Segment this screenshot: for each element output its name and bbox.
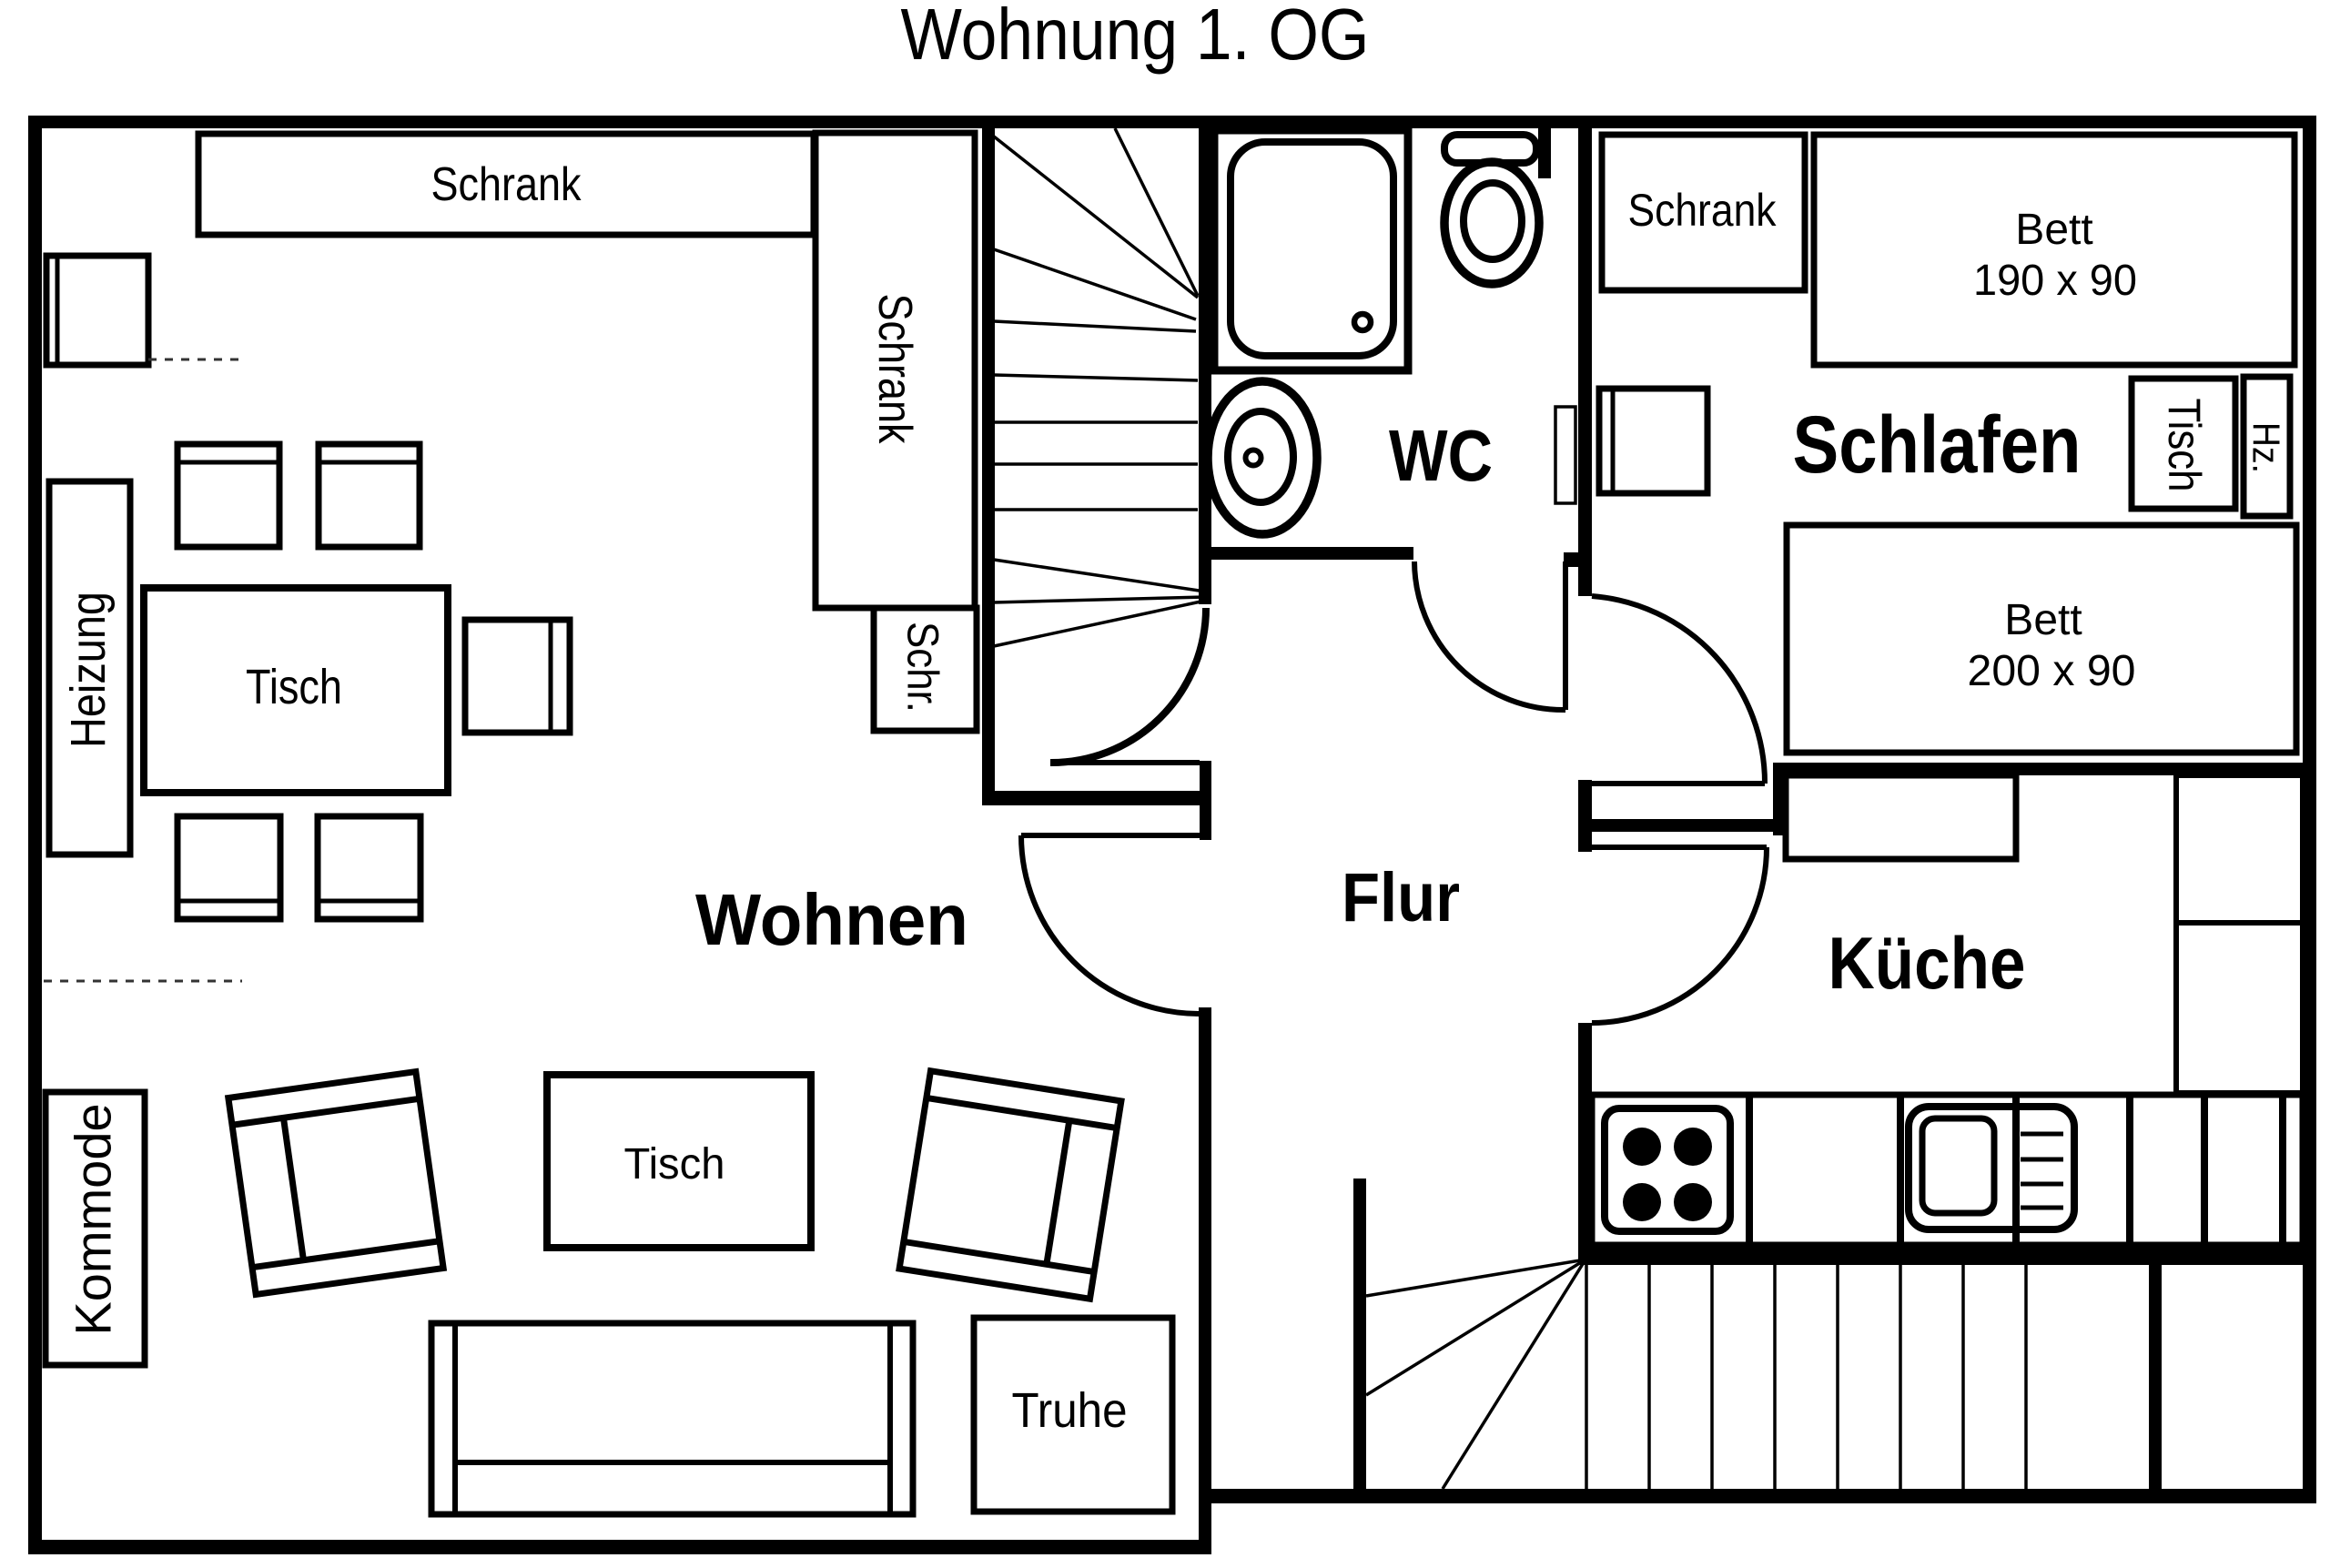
svg-text:Tisch: Tisch xyxy=(246,660,342,714)
svg-text:Bett: Bett xyxy=(2015,206,2092,254)
svg-text:Schrank: Schrank xyxy=(1628,185,1778,236)
svg-text:Tisch: Tisch xyxy=(2159,399,2210,492)
svg-text:Heizung: Heizung xyxy=(61,592,116,748)
svg-text:190 x 90: 190 x 90 xyxy=(1973,257,2137,305)
svg-text:Wohnen: Wohnen xyxy=(695,879,968,960)
svg-text:WC: WC xyxy=(1389,415,1493,496)
svg-text:Flur: Flur xyxy=(1342,859,1460,936)
svg-text:Schr.: Schr. xyxy=(898,622,947,713)
svg-text:Schrank: Schrank xyxy=(431,158,582,211)
svg-text:Hz.: Hz. xyxy=(2245,422,2288,473)
svg-text:200 x 90: 200 x 90 xyxy=(1968,647,2136,695)
svg-text:Bett: Bett xyxy=(2004,596,2082,644)
svg-text:Schrank: Schrank xyxy=(868,294,921,445)
svg-text:Tisch: Tisch xyxy=(624,1140,725,1189)
svg-text:Kommode: Kommode xyxy=(65,1103,122,1335)
svg-text:Küche: Küche xyxy=(1829,923,2026,1005)
svg-text:Schlafen: Schlafen xyxy=(1793,399,2082,490)
svg-text:Wohnung 1. OG: Wohnung 1. OG xyxy=(901,0,1370,75)
svg-text:Truhe: Truhe xyxy=(1012,1383,1128,1438)
